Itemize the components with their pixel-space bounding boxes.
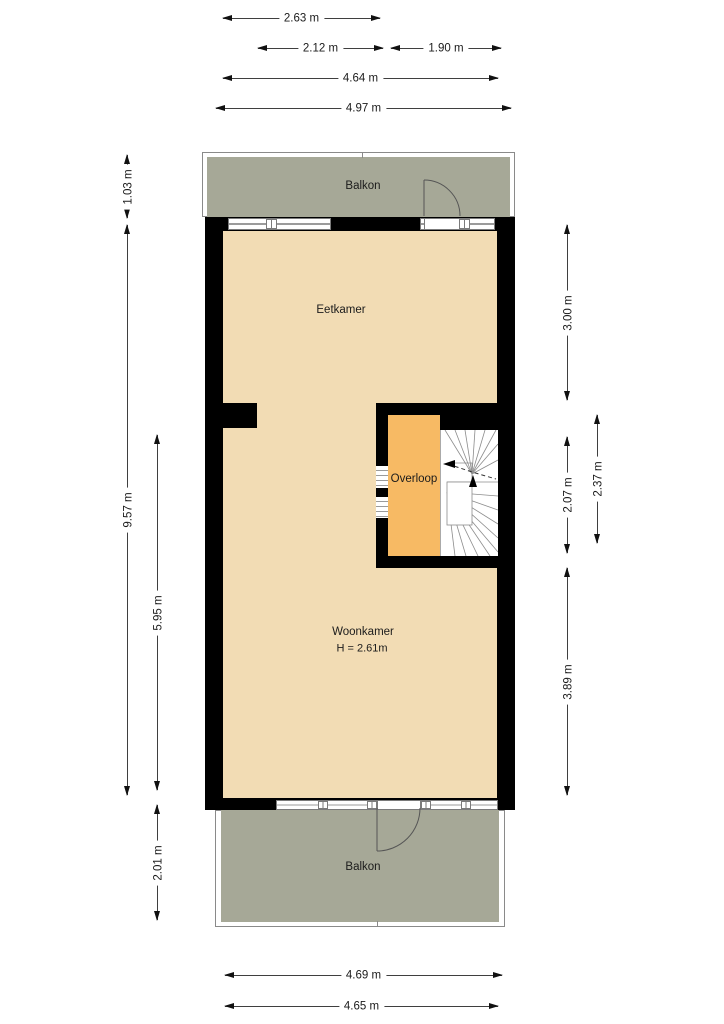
- arrow-left-icon: [224, 972, 234, 978]
- overloop-wall-top: [376, 403, 515, 415]
- dimension-label: 3.89 m: [562, 659, 576, 704]
- floor-plan: Balkon Overloop: [0, 0, 724, 1024]
- arrow-right-icon: [492, 45, 502, 51]
- dimension-label: 4.64 m: [338, 72, 383, 86]
- balcony-bottom-railing-divider: [377, 921, 378, 927]
- window-top-left-mullion: [266, 219, 277, 229]
- arrow-down-icon: [594, 534, 600, 544]
- arrow-left-icon: [224, 1003, 234, 1009]
- arrow-left-icon: [222, 15, 232, 21]
- dimension-left-2-01: 2.01 m: [157, 805, 158, 920]
- arrow-up-icon: [154, 804, 160, 814]
- overloop-doorway-upper: [376, 466, 388, 488]
- arrow-down-icon: [124, 209, 130, 219]
- dimension-top-4-64: 4.64 m: [223, 78, 498, 79]
- dimension-top-4-97: 4.97 m: [216, 108, 511, 109]
- dimension-label: 4.69 m: [341, 969, 386, 983]
- arrow-down-icon: [154, 781, 160, 791]
- dimension-top-1-90: 1.90 m: [391, 48, 501, 49]
- arrow-up-icon: [594, 414, 600, 424]
- arrow-up-icon: [564, 436, 570, 446]
- arrow-right-icon: [489, 75, 499, 81]
- dimension-label: 2.01 m: [152, 840, 166, 885]
- arrow-down-icon: [564, 786, 570, 796]
- arrow-up-icon: [564, 567, 570, 577]
- wall-right: [497, 217, 515, 810]
- dimension-label: 3.00 m: [562, 290, 576, 335]
- arrow-up-icon: [564, 224, 570, 234]
- dimension-bottom-4-65: 4.65 m: [225, 1006, 498, 1007]
- dimension-label: 4.97 m: [341, 102, 386, 116]
- overloop-wall-top-inner: [440, 415, 498, 430]
- dimension-right-3-00: 3.00 m: [567, 225, 568, 400]
- dimension-left-5-95: 5.95 m: [157, 435, 158, 790]
- dimension-left-9-57: 9.57 m: [127, 225, 128, 795]
- dimension-right-2-37: 2.37 m: [597, 415, 598, 543]
- window-bottom-mullion-4: [461, 801, 471, 809]
- arrow-right-icon: [374, 45, 384, 51]
- arrow-up-icon: [124, 224, 130, 234]
- arrow-right-icon: [502, 105, 512, 111]
- window-top-right-mullion: [459, 219, 470, 229]
- arrow-left-icon: [222, 75, 232, 81]
- arrow-left-icon: [390, 45, 400, 51]
- arrow-right-icon: [489, 1003, 499, 1009]
- dimension-top-2-12: 2.12 m: [258, 48, 383, 49]
- dimension-label: 2.12 m: [298, 42, 343, 56]
- arrow-left-icon: [257, 45, 267, 51]
- arrow-right-icon: [493, 972, 503, 978]
- dimension-label: 9.57 m: [122, 487, 136, 532]
- arrow-left-icon: [215, 105, 225, 111]
- wall-stub-left: [223, 403, 257, 428]
- eetkamer-label: Eetkamer: [316, 304, 365, 318]
- dimension-top-2-63: 2.63 m: [223, 18, 380, 19]
- woonkamer-label: Woonkamer: [332, 626, 394, 640]
- overloop-doorway-lower: [376, 497, 388, 518]
- arrow-down-icon: [124, 786, 130, 796]
- balcony-bottom-label: Balkon: [345, 861, 380, 875]
- dimension-label: 4.65 m: [339, 1000, 384, 1014]
- dimension-label: 2.63 m: [279, 12, 324, 26]
- dimension-label: 1.03 m: [122, 164, 136, 209]
- dimension-label: 5.95 m: [152, 590, 166, 635]
- arrow-down-icon: [154, 911, 160, 921]
- arrow-right-icon: [371, 15, 381, 21]
- staircase: [440, 430, 498, 556]
- dimension-label: 2.37 m: [592, 456, 606, 501]
- arrow-down-icon: [564, 544, 570, 554]
- dimension-right-3-89: 3.89 m: [567, 568, 568, 795]
- balcony-top-railing-divider: [362, 152, 363, 158]
- dimension-left-1-03: 1.03 m: [127, 155, 128, 218]
- window-top-left: [228, 218, 331, 230]
- window-bottom-mullion-1: [318, 801, 328, 809]
- dimension-right-2-07: 2.07 m: [567, 437, 568, 553]
- balcony-top-label: Balkon: [345, 180, 380, 194]
- arrow-down-icon: [564, 391, 570, 401]
- dimension-label: 1.90 m: [423, 42, 468, 56]
- woonkamer-height-label: H = 2.61m: [336, 642, 387, 655]
- dimension-label: 2.07 m: [562, 472, 576, 517]
- overloop-wall-bottom: [376, 556, 498, 568]
- overloop-label: Overloop: [391, 473, 438, 487]
- dimension-bottom-4-69: 4.69 m: [225, 975, 502, 976]
- door-arc-bottom-balcony-icon: [370, 800, 430, 860]
- door-opening-top-balcony: [424, 218, 460, 230]
- arrow-up-icon: [124, 154, 130, 164]
- wall-left: [205, 217, 223, 810]
- arrow-up-icon: [154, 434, 160, 444]
